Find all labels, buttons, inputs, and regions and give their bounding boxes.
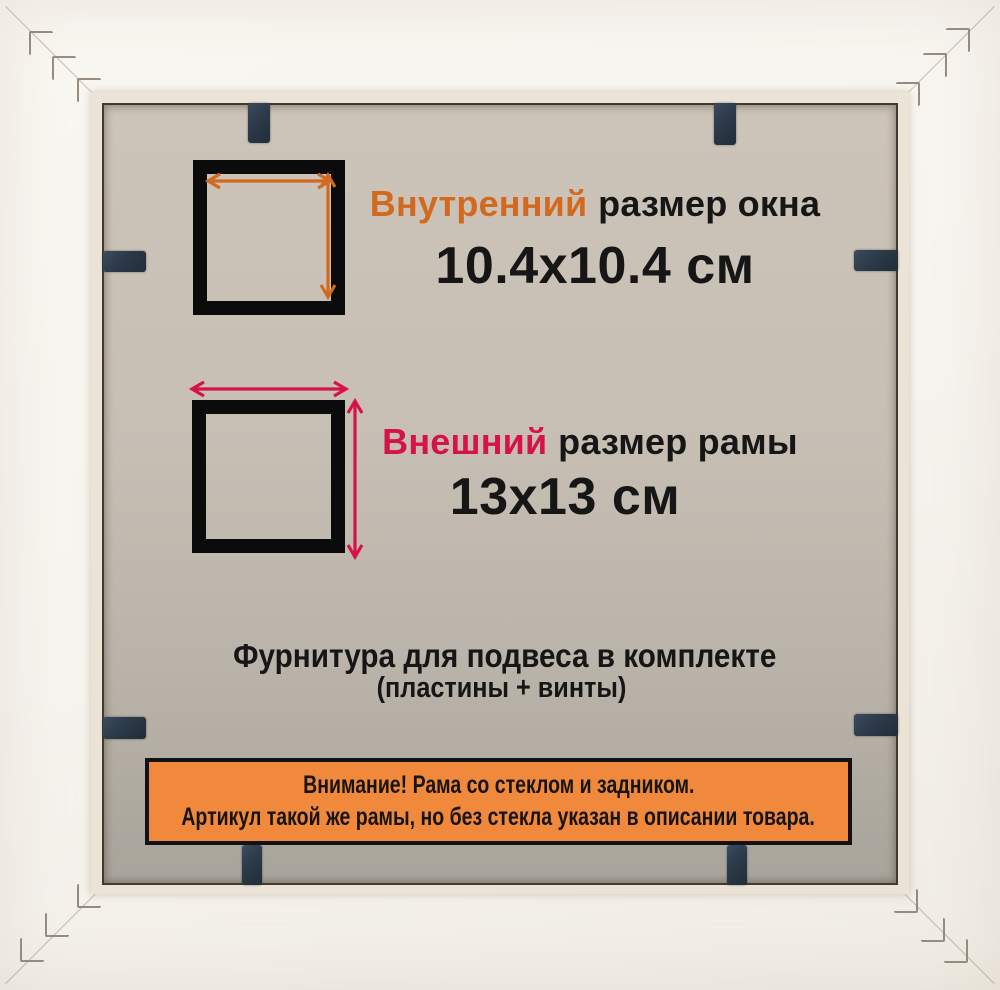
- v-nail-staple: [923, 53, 947, 77]
- hardware-note-subtitle: (пластины + винты): [252, 672, 752, 705]
- warning-line-1: Внимание! Рама со стеклом и задником.: [303, 772, 694, 800]
- inner-height-arrow: [316, 164, 340, 308]
- inner-size-label: Внутренний размер окна: [345, 183, 845, 225]
- v-nail-staple: [20, 938, 44, 962]
- flex-tab-clip-right-upper: [854, 250, 898, 271]
- flex-tab-clip-right-lower: [854, 714, 898, 736]
- hardware-note-title: Фурнитура для подвеса в комплекте: [255, 637, 755, 675]
- flex-tab-clip-left-upper: [103, 251, 146, 272]
- v-nail-staple: [45, 913, 69, 937]
- v-nail-staple: [52, 56, 76, 80]
- outer-size-label: Внешний размер рамы: [340, 421, 840, 463]
- flex-tab-clip-top-right: [714, 103, 736, 145]
- frame-back-product-photo: Внутренний размер окна 10.4x10.4 см Внеш…: [0, 0, 1000, 990]
- flex-tab-clip-left-lower: [103, 717, 146, 739]
- inner-size-label-rest: размер окна: [598, 183, 820, 225]
- flex-tab-clip-top-left: [248, 103, 270, 143]
- flex-tab-clip-bottom-left: [242, 845, 262, 885]
- inner-size-label-accent: Внутренний: [370, 183, 588, 225]
- outer-size-value: 13x13 см: [315, 467, 815, 527]
- v-nail-staple: [29, 31, 53, 55]
- outer-size-label-accent: Внешний: [382, 421, 547, 463]
- outer-size-label-rest: размер рамы: [558, 421, 798, 463]
- outer-width-arrow: [180, 377, 358, 401]
- inner-size-value: 10.4x10.4 см: [345, 236, 845, 296]
- v-nail-staple: [946, 28, 970, 52]
- flex-tab-clip-bottom-right: [727, 845, 747, 885]
- warning-line-2: Артикул такой же рамы, но без стекла ука…: [182, 804, 815, 832]
- v-nail-staple: [944, 939, 968, 963]
- v-nail-staple: [921, 918, 945, 942]
- warning-banner: Внимание! Рама со стеклом и задником. Ар…: [145, 758, 852, 845]
